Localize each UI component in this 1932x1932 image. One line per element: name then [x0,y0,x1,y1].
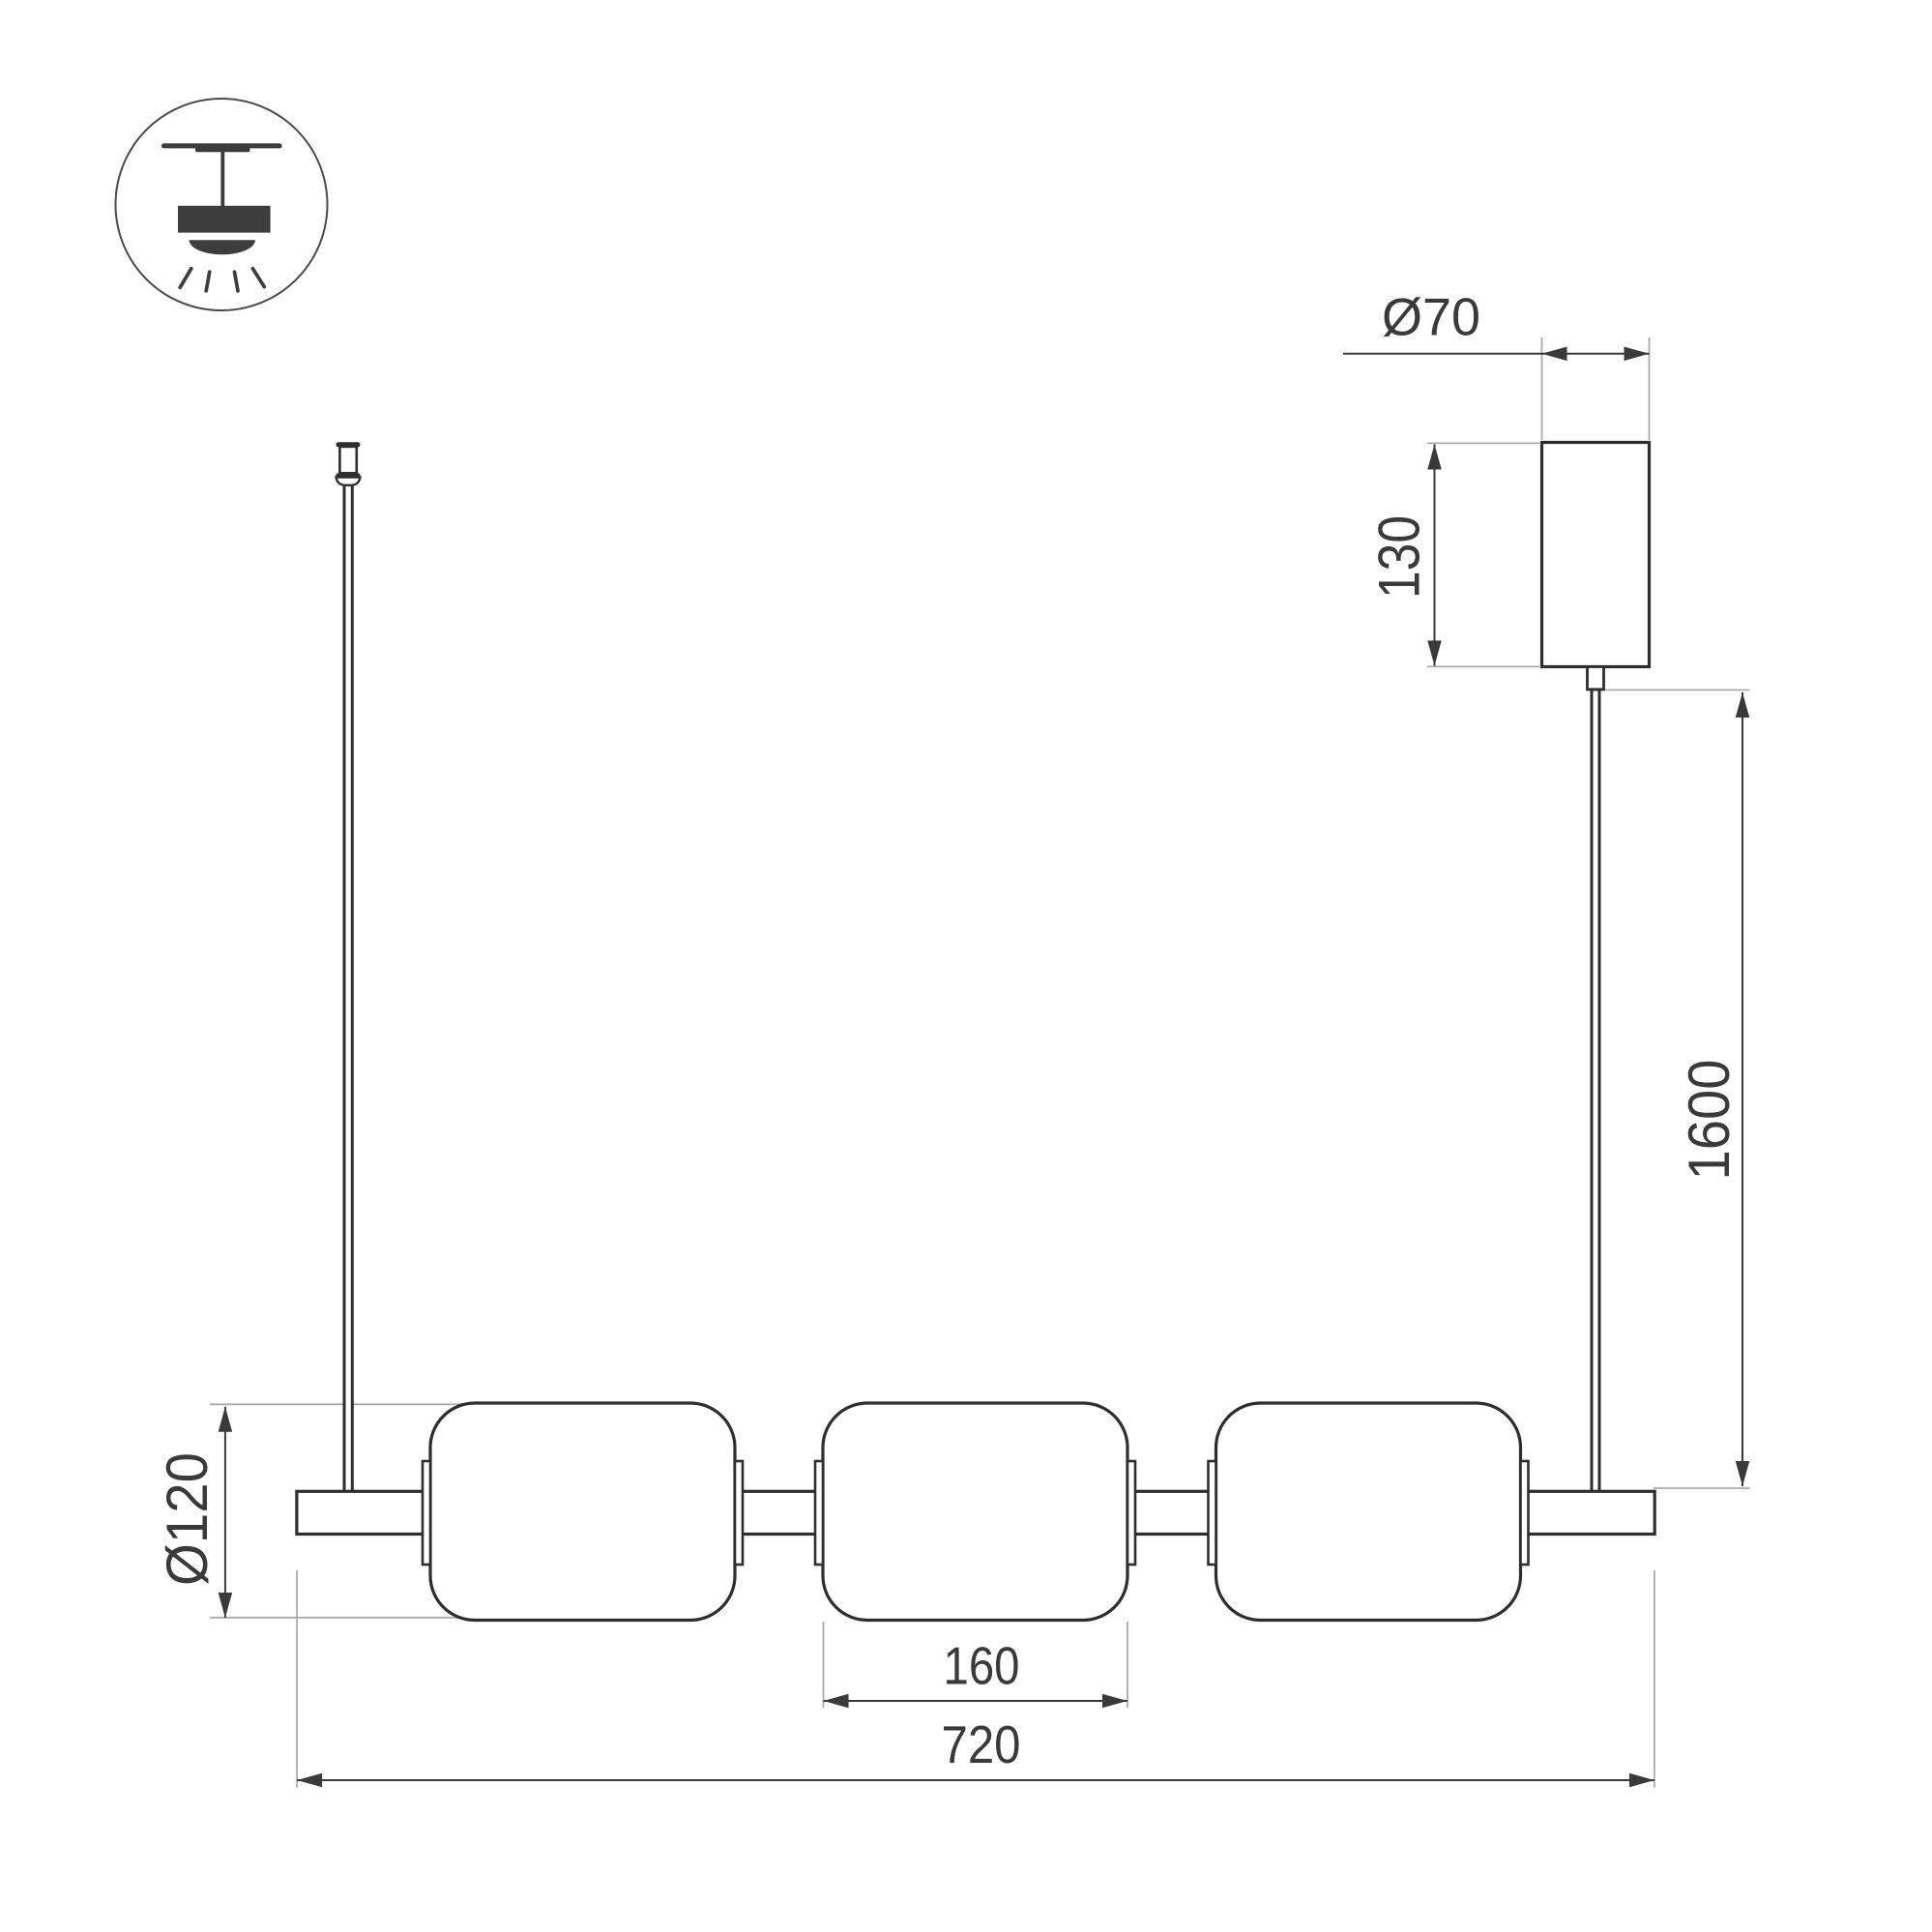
svg-text:Ø70: Ø70 [1382,287,1480,347]
svg-text:1600: 1600 [1677,1060,1742,1181]
svg-text:130: 130 [1367,515,1432,599]
svg-text:160: 160 [944,1636,1020,1696]
svg-text:Ø120: Ø120 [155,1452,220,1586]
svg-text:720: 720 [942,1714,1021,1774]
